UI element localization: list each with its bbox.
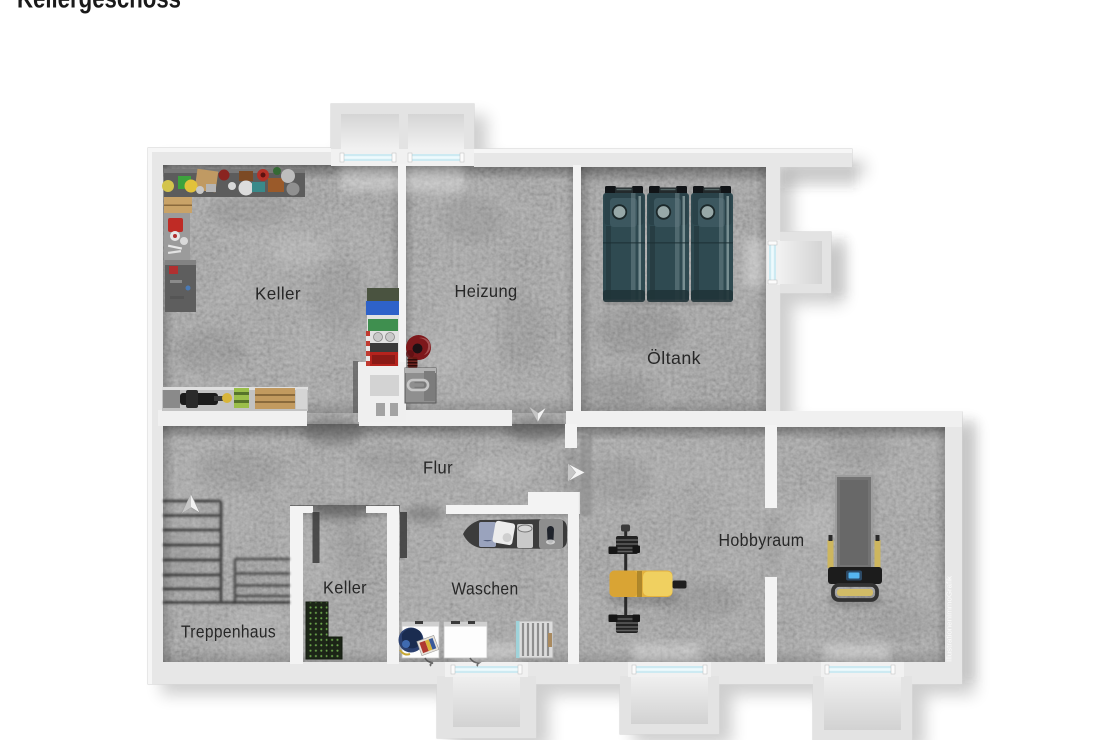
svg-text:IllustrationenImmoGrafik: IllustrationenImmoGrafik xyxy=(945,576,954,662)
svg-text:Keller: Keller xyxy=(255,284,301,304)
svg-text:Treppenhaus: Treppenhaus xyxy=(181,622,276,642)
svg-text:Öltank: Öltank xyxy=(647,348,701,368)
svg-text:Waschen: Waschen xyxy=(452,579,519,599)
svg-text:Flur: Flur xyxy=(423,458,453,478)
svg-text:Kellergeschoss: Kellergeschoss xyxy=(17,0,181,14)
svg-text:Heizung: Heizung xyxy=(455,281,518,301)
svg-text:Keller: Keller xyxy=(323,578,367,598)
svg-text:Hobbyraum: Hobbyraum xyxy=(719,530,805,550)
